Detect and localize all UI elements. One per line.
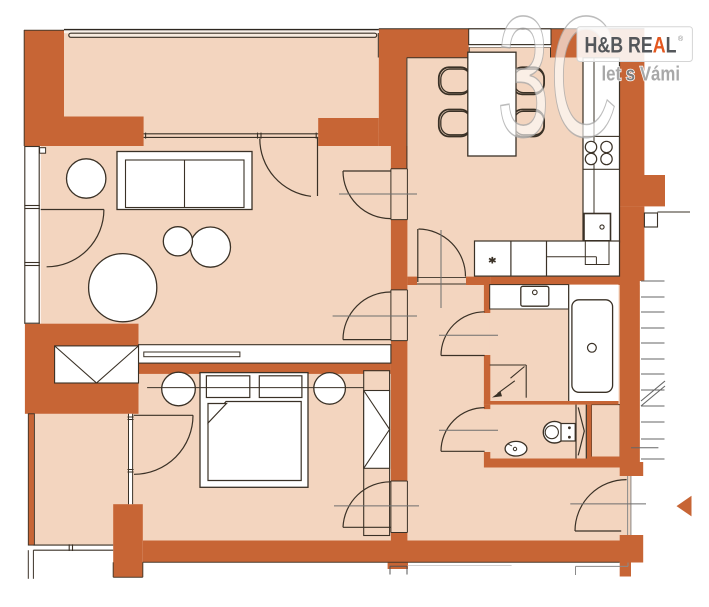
svg-text:H&B REAL: H&B REAL — [585, 32, 677, 57]
svg-text:let s Vámi: let s Vámi — [602, 63, 681, 85]
svg-text:3C: 3C — [497, 0, 618, 173]
svg-text:®: ® — [678, 35, 684, 43]
